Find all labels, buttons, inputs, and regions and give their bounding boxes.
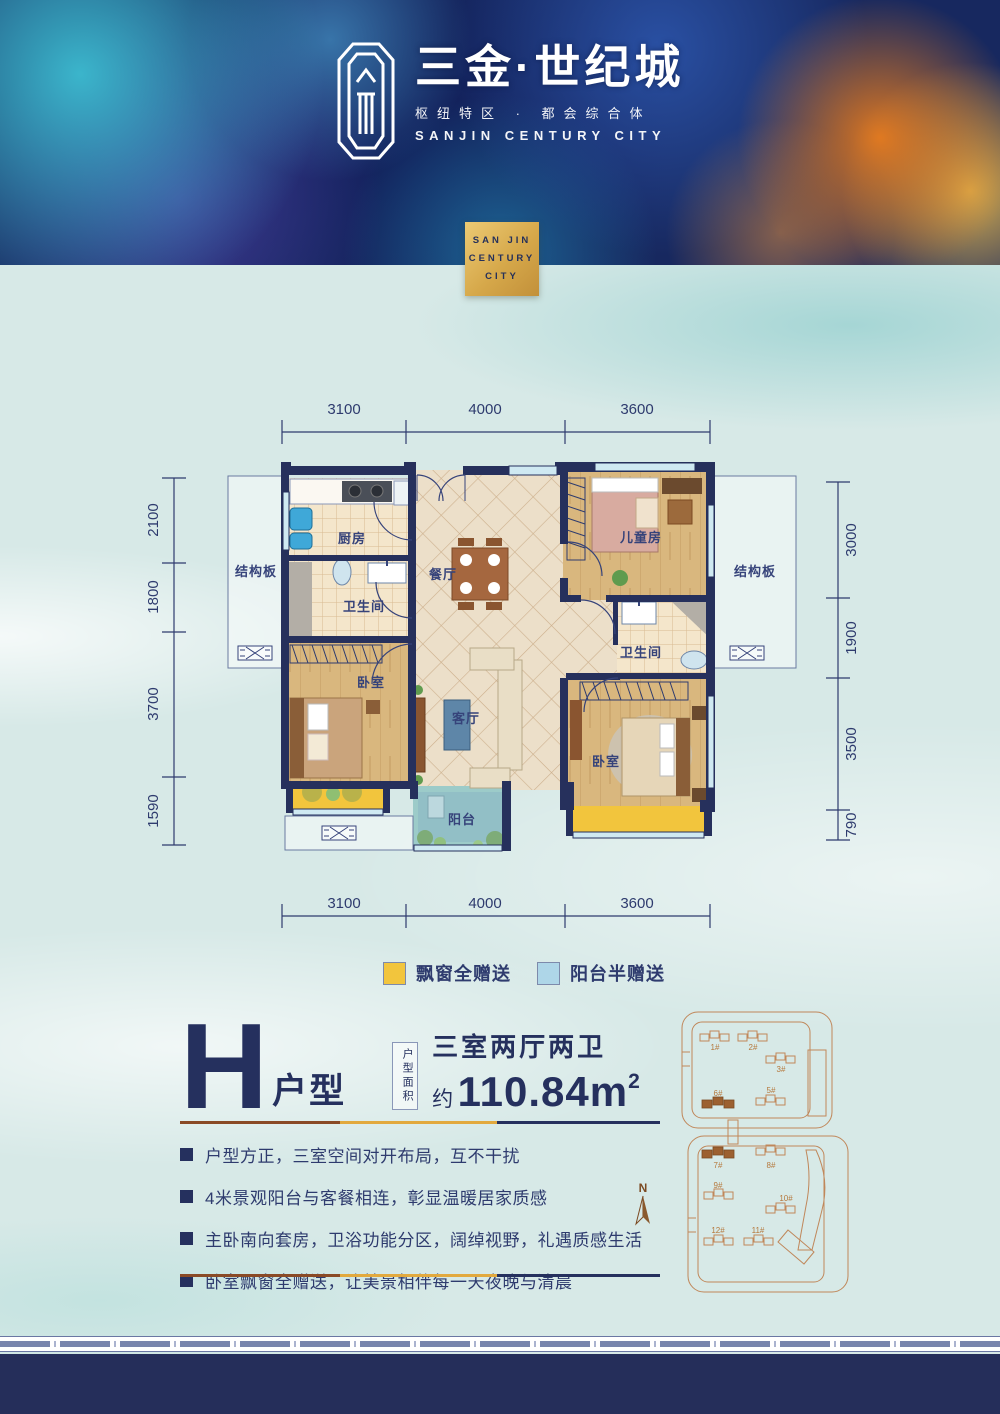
area-prefix: 约 <box>432 1088 453 1111</box>
logo-group: 三金·世纪城 枢纽特区 · 都会综合体 SANJIN CENTURY CITY <box>335 42 684 160</box>
feature-list: 户型方正，三室空间对开布局，互不干扰 4米景观阳台与客餐相连，彰显温暖居家质感 … <box>180 1142 660 1310</box>
bay-window-right <box>573 806 710 834</box>
legend-item-bay-window: 飘窗全赠送 <box>383 960 511 986</box>
compass-n-label: N <box>639 1181 648 1195</box>
decorative-border <box>0 1336 1000 1352</box>
label-bedroom-left: 卧室 <box>357 675 385 690</box>
building-label-8: 8# <box>767 1161 776 1170</box>
dim-bottom-1: 3100 <box>327 895 360 912</box>
dim-left-3: 3700 <box>145 687 162 720</box>
dim-bottom-3: 3600 <box>620 895 653 912</box>
dim-right-2: 1900 <box>843 621 860 654</box>
feature-text-2: 4米景观阳台与客餐相连，彰显温暖居家质感 <box>205 1184 547 1209</box>
hall-floor <box>566 600 617 678</box>
legend-swatch-blue <box>537 962 560 985</box>
separator-top <box>180 1121 660 1124</box>
bullet-square-icon <box>180 1232 193 1245</box>
building-label-2: 2# <box>749 1043 758 1052</box>
legend-swatch-yellow <box>383 962 406 985</box>
unit-info: H 户型 户型面积 三室两厅两卫 约 110.84m2 <box>180 1016 640 1116</box>
label-kids-room: 儿童房 <box>619 530 662 545</box>
label-bath2: 卫生间 <box>620 645 662 660</box>
bullet-square-icon <box>180 1148 193 1161</box>
label-slab-left: 结构板 <box>235 564 277 579</box>
feature-item: 4米景观阳台与客餐相连，彰显温暖居家质感 <box>180 1184 660 1209</box>
building-label-11: 11# <box>752 1226 765 1235</box>
bullet-square-icon <box>180 1190 193 1203</box>
legend-label-bay: 飘窗全赠送 <box>416 960 511 986</box>
label-balcony: 阳台 <box>448 812 476 827</box>
flyer-page: 三金·世纪城 枢纽特区 · 都会综合体 SANJIN CENTURY CITY … <box>0 0 1000 1414</box>
feature-text-3: 主卧南向套房，卫浴功能分区，阔绰视野，礼遇质感生活 <box>205 1226 643 1251</box>
building-label-3: 3# <box>777 1065 786 1074</box>
dim-bottom-2: 4000 <box>468 895 501 912</box>
building-label-10: 10# <box>779 1194 793 1203</box>
building-label-12: 12# <box>711 1226 725 1235</box>
badge-line2: CENTURY <box>469 250 536 268</box>
label-kitchen: 厨房 <box>338 531 366 546</box>
feature-text-4: 卧室飘窗全赠送，让美景相伴每一天夜晚与清晨 <box>205 1268 573 1293</box>
building-label-1: 1# <box>711 1043 720 1052</box>
dim-top-1: 3100 <box>327 401 360 418</box>
dim-left-2: 1800 <box>145 580 162 613</box>
label-dining: 餐厅 <box>428 567 457 582</box>
brand-logo-icon <box>335 42 397 160</box>
dining-furniture <box>452 538 508 610</box>
dim-right-3: 3500 <box>843 727 860 760</box>
legend-label-balcony: 阳台半赠送 <box>570 960 665 986</box>
dim-right-4: 790 <box>843 812 860 837</box>
brand-english: SANJIN CENTURY CITY <box>415 128 684 143</box>
label-slab-right: 结构板 <box>734 564 776 579</box>
building-label-5: 5# <box>767 1086 776 1095</box>
badge-line1: SAN JIN <box>473 232 531 250</box>
site-buildings <box>700 1031 795 1245</box>
floor-plan: 厨房 卫生间 餐厅 客厅 阳台 卧室 卧室 儿童房 卫生间 结构板 结构板 <box>140 380 870 960</box>
unit-rooms-desc: 三室两厅两卫 <box>432 1027 640 1064</box>
unit-area-line: 约 110.84m2 <box>432 1068 640 1116</box>
dim-top-3: 3600 <box>620 401 653 418</box>
unit-area-box: 户型面积 <box>392 1042 418 1110</box>
dining-living-floor <box>412 470 566 790</box>
site-plan: 1# 2# 3# 6# 5# 7# 8# 9# 10# 12# 11# N <box>620 1000 880 1330</box>
building-label-9: 9# <box>714 1181 723 1190</box>
dim-right-1: 3000 <box>843 523 860 556</box>
compass-icon: N <box>636 1181 650 1224</box>
brand-title: 三金·世纪城 <box>415 42 684 93</box>
brand-tagline: 枢纽特区 · 都会综合体 <box>415 103 684 122</box>
unit-letter: H <box>180 1016 268 1116</box>
footer-bar <box>0 1354 1000 1414</box>
area-value: 110.84m <box>458 1068 629 1115</box>
badge-line3: CITY <box>485 268 519 286</box>
feature-item: 主卧南向套房，卫浴功能分区，阔绰视野，礼遇质感生活 <box>180 1226 660 1251</box>
dim-left-4: 1590 <box>145 794 162 827</box>
dim-left-1: 2100 <box>145 503 162 536</box>
feature-text-1: 户型方正，三室空间对开布局，互不干扰 <box>205 1142 520 1167</box>
feature-item: 卧室飘窗全赠送，让美景相伴每一天夜晚与清晨 <box>180 1268 660 1293</box>
dim-top-2: 4000 <box>468 401 501 418</box>
legend-item-balcony: 阳台半赠送 <box>537 960 665 986</box>
legend: 飘窗全赠送 阳台半赠送 <box>383 960 665 986</box>
gold-badge: SAN JIN CENTURY CITY <box>465 222 539 296</box>
unit-type-label: 户型 <box>272 1063 346 1114</box>
label-bath1: 卫生间 <box>343 599 385 614</box>
label-living: 客厅 <box>452 711 480 726</box>
building-label-7: 7# <box>714 1161 723 1170</box>
building-label-6: 6# <box>714 1089 723 1098</box>
separator-bottom <box>180 1274 660 1277</box>
feature-item: 户型方正，三室空间对开布局，互不干扰 <box>180 1142 660 1167</box>
label-bedroom-right: 卧室 <box>592 754 620 769</box>
